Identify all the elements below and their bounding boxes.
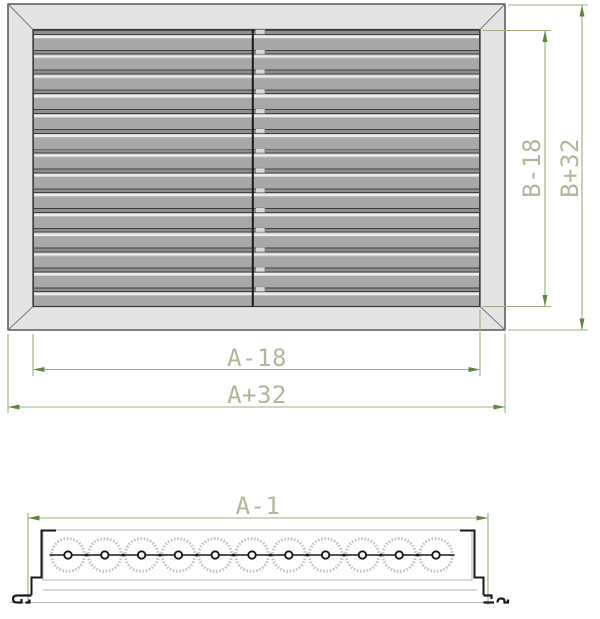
louver-clip (256, 188, 265, 193)
drawing-overlay: B-18 B+32 A-18 (0, 0, 600, 619)
louver-clip (256, 168, 265, 173)
plenum-box (10, 530, 490, 603)
louver-clip (256, 30, 265, 35)
spring-joint-dot (195, 554, 198, 557)
spring-joint-dot (379, 554, 382, 557)
dim-label-a-outer: A+32 (227, 381, 287, 409)
section-view: A-1 (10, 492, 508, 605)
spring-hub (64, 551, 71, 558)
spring-hub (212, 551, 219, 558)
spring-hub (285, 551, 292, 558)
spring-joint-dot (416, 554, 419, 557)
spring-joint-dot (159, 554, 162, 557)
mounting-profile-right (460, 531, 508, 603)
technical-drawing-grille: B-18 B+32 A-18 (0, 0, 600, 619)
front-view (8, 4, 505, 330)
mounting-profile-left (13, 531, 56, 603)
louver-clip (256, 148, 265, 153)
louver-clip (256, 228, 265, 233)
spring-joint-dot (269, 554, 272, 557)
louver-clip (256, 89, 265, 94)
louver-clip (256, 287, 265, 292)
louver-clip (256, 69, 265, 74)
spring-hub (101, 551, 108, 558)
spring-hub (396, 551, 403, 558)
spring-hub (175, 551, 182, 558)
spring-joint-dot (343, 554, 346, 557)
dim-label-a-inner: A-18 (227, 344, 287, 372)
dim-label-b-inner: B-18 (518, 138, 546, 198)
spring-joint-dot (232, 554, 235, 557)
spring-joint-dot (85, 554, 88, 557)
louver-clip (256, 109, 265, 114)
spring-hub (322, 551, 329, 558)
dim-label-a-section: A-1 (236, 492, 281, 520)
dimension-a-section: A-1 (28, 492, 488, 605)
spring-hub (248, 551, 255, 558)
spring-joint-dot (306, 554, 309, 557)
spring-hub (138, 551, 145, 558)
louver-clip (256, 267, 265, 272)
louver-clips (256, 30, 265, 292)
spring-hub (432, 551, 439, 558)
spring-joint-dot (122, 554, 125, 557)
louver-clip (256, 208, 265, 213)
spring-hub (359, 551, 366, 558)
louver-clip (256, 49, 265, 54)
louver-clip (256, 247, 265, 252)
louver-clip (256, 129, 265, 134)
dim-label-b-outer: B+32 (556, 138, 584, 198)
